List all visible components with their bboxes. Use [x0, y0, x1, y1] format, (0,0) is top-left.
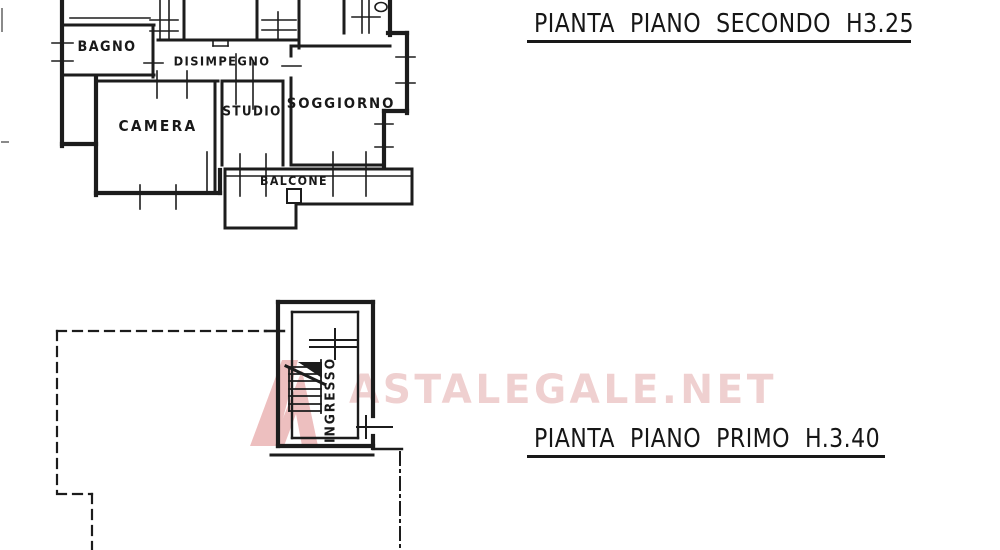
first-floor-title: PIANTA PIANO PRIMO H.3.40: [534, 424, 880, 454]
second-floor-title: PIANTA PIANO SECONDO H3.25: [534, 9, 914, 39]
room-label-bagno: BAGNO: [78, 39, 137, 55]
first-floor-plan: [57, 302, 402, 550]
room-label-soggiorno: SOGGIORNO: [287, 96, 395, 112]
stair-landing-fill: [298, 362, 322, 378]
first-floor-dashed-perimeter: [57, 331, 266, 550]
room-label-ingresso: INGRESSO: [324, 357, 339, 443]
first-floor-title-underline: [527, 455, 885, 458]
room-label-camera: CAMERA: [118, 117, 197, 135]
room-label-balcone: BALCONE: [260, 174, 328, 188]
second-floor-title-underline: [527, 40, 911, 43]
bathroom-fixture: [375, 3, 387, 12]
floorplan-scan: ASTALEGALE.NET: [0, 0, 1000, 550]
room-label-studio: STUDIO: [222, 105, 281, 120]
room-label-disimpegno: DISIMPEGNO: [174, 54, 271, 69]
balcony-pillar: [287, 189, 301, 203]
scan-edge-artifacts: [1, 8, 9, 142]
plan-linework: [0, 0, 1000, 550]
